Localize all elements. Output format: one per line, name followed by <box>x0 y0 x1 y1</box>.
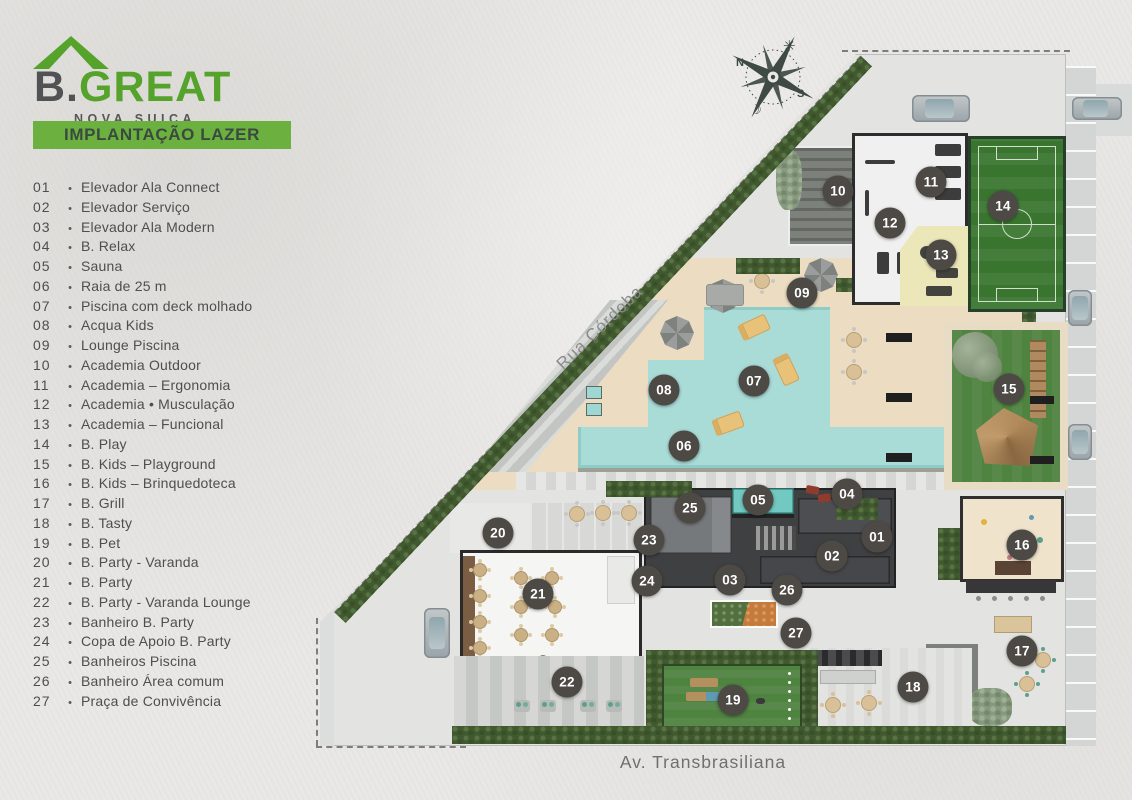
bullet-icon: • <box>59 223 81 235</box>
legend-item-number: 03 <box>33 219 59 235</box>
legend-item-number: 01 <box>33 179 59 195</box>
wall-segment <box>1030 396 1054 404</box>
plan-marker-04: 04 <box>832 479 863 510</box>
brand-logo-b: B. <box>34 63 79 111</box>
legend-item-label: Academia – Ergonomia <box>81 377 231 393</box>
legend-item-number: 08 <box>33 317 59 333</box>
bullet-icon: • <box>59 519 81 531</box>
parcel-boundary-dashed <box>316 746 466 748</box>
parcel-boundary-dashed <box>842 50 1070 52</box>
legend-item-label: Elevador Serviço <box>81 199 190 215</box>
plan-marker-01: 01 <box>862 522 893 553</box>
legend-item: 15 • B. Kids – Playground <box>33 456 333 476</box>
legend-item-label: Academia – Funcional <box>81 416 224 432</box>
legend-item-label: B. Kids – Playground <box>81 456 216 472</box>
legend-item: 02 • Elevador Serviço <box>33 199 333 219</box>
plaza-planter <box>710 600 778 628</box>
bush <box>968 688 1012 726</box>
legend-item-number: 27 <box>33 693 59 709</box>
legend-item-label: Praça de Convivência <box>81 693 221 709</box>
bullet-icon: • <box>59 479 81 491</box>
legend-item-label: Copa de Apoio B. Party <box>81 633 231 649</box>
legend-item: 23 • Banheiro B. Party <box>33 614 333 634</box>
planting-bed <box>606 481 692 497</box>
legend-item-label: Academia • Musculação <box>81 396 235 412</box>
legend-item-number: 20 <box>33 554 59 570</box>
legend-item-label: Piscina com deck molhado <box>81 298 252 314</box>
bullet-icon: • <box>59 420 81 432</box>
legend-item: 22 • B. Party - Varanda Lounge <box>33 594 333 614</box>
bullet-icon: • <box>59 677 81 689</box>
bullet-icon: • <box>59 282 81 294</box>
bullet-icon: • <box>59 618 81 630</box>
party-table <box>469 611 491 633</box>
legend-item: 14 • B. Play <box>33 436 333 456</box>
bullet-icon: • <box>59 598 81 610</box>
agility-ramp-icon <box>690 678 718 687</box>
legend-item: 20 • B. Party - Varanda <box>33 554 333 574</box>
wall-segment <box>886 333 912 342</box>
plan-marker-11: 11 <box>916 167 947 198</box>
treadmill-icon <box>935 144 961 156</box>
bullet-icon: • <box>59 381 81 393</box>
legend-item-number: 05 <box>33 258 59 274</box>
legend-item-label: Banheiro B. Party <box>81 614 194 630</box>
legend-item-label: Banheiro Área comum <box>81 673 224 689</box>
bullet-icon: • <box>59 558 81 570</box>
legend-item: 09 • Lounge Piscina <box>33 337 333 357</box>
legend-item-number: 19 <box>33 535 59 551</box>
kids-pool <box>586 403 602 416</box>
legend-item-number: 10 <box>33 357 59 373</box>
plan-marker-21: 21 <box>523 579 554 610</box>
plan-marker-07: 07 <box>739 366 770 397</box>
party-varanda-lounge <box>454 656 644 730</box>
daybed <box>706 284 744 306</box>
legend-item-number: 22 <box>33 594 59 610</box>
legend-item-label: B. Party <box>81 574 132 590</box>
tasty-table <box>856 690 882 716</box>
legend-item: 07 • Piscina com deck molhado <box>33 298 333 318</box>
legend-item-number: 25 <box>33 653 59 669</box>
stool-icon <box>1024 596 1029 601</box>
legend-item-number: 15 <box>33 456 59 472</box>
legend-item: 05 • Sauna <box>33 258 333 278</box>
legend-item-label: Raia de 25 m <box>81 278 167 294</box>
plan-marker-05: 05 <box>743 485 774 516</box>
legend-item-label: Elevador Ala Modern <box>81 219 215 235</box>
plan-marker-20: 20 <box>483 518 514 549</box>
legend-item-number: 06 <box>33 278 59 294</box>
legend-item: 19 • B. Pet <box>33 535 333 555</box>
bullet-icon: • <box>59 302 81 314</box>
gym-equipment-icon <box>865 190 869 216</box>
bullet-icon: • <box>59 361 81 373</box>
legend-item-label: B. Pet <box>81 535 120 551</box>
court-goal-area <box>996 288 1038 302</box>
legend-item-label: Lounge Piscina <box>81 337 180 353</box>
street-label-av-transbrasiliana: Av. Transbrasiliana <box>553 752 853 773</box>
toy-icon <box>981 519 987 525</box>
barbell-rack-icon <box>865 160 895 164</box>
planting-bed <box>736 258 800 274</box>
legend-item-number: 12 <box>33 396 59 412</box>
legend-item: 13 • Academia – Funcional <box>33 416 333 436</box>
bullet-icon: • <box>59 697 81 709</box>
plan-marker-09: 09 <box>787 278 818 309</box>
legend-item: 11 • Academia – Ergonomia <box>33 377 333 397</box>
bullet-icon: • <box>59 637 81 649</box>
legend-item-number: 23 <box>33 614 59 630</box>
bullet-icon: • <box>59 539 81 551</box>
plan-marker-10: 10 <box>823 176 854 207</box>
stairs <box>756 526 796 550</box>
tasty-kitchen-counter <box>814 650 882 666</box>
slalom-posts-icon <box>788 672 791 675</box>
stool-icon <box>992 596 997 601</box>
lounge-sofa-icon <box>606 700 622 712</box>
legend-item-label: B. Party - Varanda Lounge <box>81 594 251 610</box>
plan-marker-03: 03 <box>715 565 746 596</box>
tasty-island <box>820 670 876 684</box>
bullet-icon: • <box>59 341 81 353</box>
compass-south-label: S <box>797 88 804 100</box>
legend-item-number: 16 <box>33 475 59 491</box>
legend-item-label: B. Kids – Brinquedoteca <box>81 475 236 491</box>
bike-icon <box>877 252 889 274</box>
plan-marker-19: 19 <box>718 685 749 716</box>
dog-icon <box>756 698 765 704</box>
plan-marker-27: 27 <box>781 618 812 649</box>
varanda-table <box>590 500 616 526</box>
moon-icon: ☽ <box>750 102 762 117</box>
bullet-icon: • <box>59 321 81 333</box>
lounge-sofa-icon <box>540 700 556 712</box>
plan-marker-14: 14 <box>988 191 1019 222</box>
plan-marker-13: 13 <box>926 240 957 271</box>
bullet-icon: • <box>59 242 81 254</box>
bullet-icon: • <box>59 460 81 472</box>
lounge-sofa-icon <box>580 700 596 712</box>
compass-north-label: N <box>736 57 744 69</box>
plan-marker-18: 18 <box>898 672 929 703</box>
bullet-icon: • <box>59 440 81 452</box>
legend-item-label: B. Play <box>81 436 127 452</box>
brand-logo-great: GREAT <box>79 63 231 111</box>
bench-icon <box>926 286 952 296</box>
plan-marker-25: 25 <box>675 493 706 524</box>
bullet-icon: • <box>59 203 81 215</box>
party-table <box>469 559 491 581</box>
party-table <box>541 624 563 646</box>
avenue-hedge <box>452 726 1066 744</box>
legend-item-number: 04 <box>33 238 59 254</box>
legend-item: 10 • Academia Outdoor <box>33 357 333 377</box>
page-title: IMPLANTAÇÃO LAZER <box>33 121 291 149</box>
toy-icon <box>1037 537 1043 543</box>
stool-icon <box>1008 596 1013 601</box>
legend-item-label: Sauna <box>81 258 122 274</box>
toy-icon <box>1029 515 1034 520</box>
legend-item-number: 14 <box>33 436 59 452</box>
bullet-icon: • <box>59 183 81 195</box>
plan-marker-26: 26 <box>772 575 803 606</box>
legend-item-label: Banheiros Piscina <box>81 653 196 669</box>
legend-item-number: 18 <box>33 515 59 531</box>
plan-marker-23: 23 <box>634 525 665 556</box>
legend-item-label: B. Party - Varanda <box>81 554 199 570</box>
car-icon <box>1072 97 1122 120</box>
legend-item: 17 • B. Grill <box>33 495 333 515</box>
tasty-table <box>820 692 846 718</box>
legend-item-number: 13 <box>33 416 59 432</box>
varanda-table <box>564 501 590 527</box>
legend-item-label: Acqua Kids <box>81 317 154 333</box>
plan-marker-06: 06 <box>669 431 700 462</box>
plan-marker-16: 16 <box>1007 530 1038 561</box>
legend-item: 01 • Elevador Ala Connect <box>33 179 333 199</box>
legend-item-number: 11 <box>33 377 59 393</box>
play-tower <box>1030 340 1046 418</box>
hedge-strip <box>938 528 962 580</box>
legend-item-number: 02 <box>33 199 59 215</box>
legend-item: 03 • Elevador Ala Modern <box>33 219 333 239</box>
legend-item: 21 • B. Party <box>33 574 333 594</box>
grill-table <box>1014 671 1040 697</box>
legend-item-label: Academia Outdoor <box>81 357 201 373</box>
car-icon <box>912 95 970 122</box>
grill-counter <box>966 580 1056 593</box>
wall-segment <box>886 453 912 462</box>
legend-item-number: 09 <box>33 337 59 353</box>
varanda-table <box>616 500 642 526</box>
grill-island <box>994 616 1032 633</box>
legend-item: 04 • B. Relax <box>33 238 333 258</box>
deck-table <box>841 359 867 385</box>
sun-icon: ✳ <box>783 38 796 55</box>
legend-item: 27 • Praça de Convivência <box>33 693 333 713</box>
party-table <box>469 585 491 607</box>
legend-item-number: 24 <box>33 633 59 649</box>
plan-marker-15: 15 <box>994 374 1025 405</box>
legend-item: 12 • Academia • Musculação <box>33 396 333 416</box>
stool-icon <box>976 596 981 601</box>
lounge-sofa-icon <box>514 700 530 712</box>
bullet-icon: • <box>59 262 81 274</box>
legend-item: 25 • Banheiros Piscina <box>33 653 333 673</box>
car-icon <box>424 608 450 658</box>
kids-pool <box>586 386 602 399</box>
court-goal-area <box>996 146 1038 160</box>
legend-item: 08 • Acqua Kids <box>33 317 333 337</box>
legend-item: 24 • Copa de Apoio B. Party <box>33 633 333 653</box>
legend-item-number: 21 <box>33 574 59 590</box>
bullet-icon: • <box>59 400 81 412</box>
legend-item-number: 07 <box>33 298 59 314</box>
street-parking-strip <box>1066 66 1096 746</box>
legend-item-label: B. Relax <box>81 238 136 254</box>
futsal-court <box>968 136 1066 312</box>
plan-marker-17: 17 <box>1007 636 1038 667</box>
plan-marker-22: 22 <box>552 667 583 698</box>
legend-list: 01 • Elevador Ala Connect 02 • Elevador … <box>33 179 333 712</box>
bullet-icon: • <box>59 499 81 511</box>
plan-marker-12: 12 <box>875 208 906 239</box>
legend-item-number: 26 <box>33 673 59 689</box>
brand-logo: B.GREAT <box>34 66 231 109</box>
legend-item-number: 17 <box>33 495 59 511</box>
legend-item-label: Elevador Ala Connect <box>81 179 220 195</box>
car-icon <box>1068 424 1092 460</box>
plan-marker-24: 24 <box>632 566 663 597</box>
legend-item: 18 • B. Tasty <box>33 515 333 535</box>
bullet-icon: • <box>59 578 81 590</box>
legend-item: 06 • Raia de 25 m <box>33 278 333 298</box>
plan-marker-02: 02 <box>817 541 848 572</box>
car-icon <box>1068 290 1092 326</box>
wall-segment <box>886 393 912 402</box>
legend-item: 16 • B. Kids – Brinquedoteca <box>33 475 333 495</box>
plan-marker-08: 08 <box>649 375 680 406</box>
legend-item-label: B. Grill <box>81 495 125 511</box>
legend-item: 26 • Banheiro Área comum <box>33 673 333 693</box>
deck-table <box>841 327 867 353</box>
cabinet-icon <box>995 561 1031 575</box>
compass-rose-icon: N S ✳ ☽ <box>723 27 823 127</box>
legend-item-label: B. Tasty <box>81 515 132 531</box>
stool-icon <box>1040 596 1045 601</box>
wall-segment <box>1030 456 1054 464</box>
party-table <box>510 624 532 646</box>
bullet-icon: • <box>59 657 81 669</box>
